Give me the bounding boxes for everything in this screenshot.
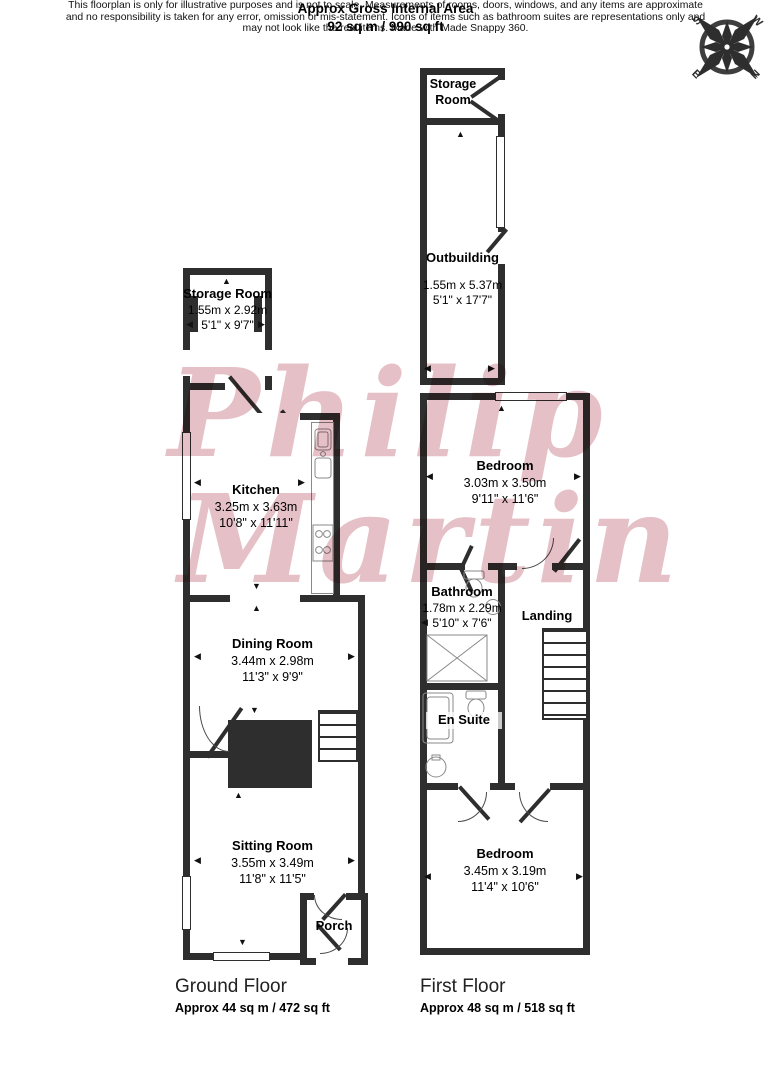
room-name: Dining Room bbox=[190, 636, 355, 653]
first-floor-caption: First Floor Approx 48 sq m / 518 sq ft bbox=[420, 976, 575, 1015]
room-dim-metric: 3.45m x 3.19m bbox=[432, 863, 578, 879]
room-name: Bedroom bbox=[432, 846, 578, 863]
door-opening bbox=[190, 413, 300, 420]
room-dim-metric: 1.55m x 2.92m bbox=[181, 303, 274, 318]
room-dim-imperial: 11'4" x 10'6" bbox=[432, 879, 578, 895]
shower-icon bbox=[426, 634, 488, 682]
room-label-kitchen: Kitchen 3.25m x 3.63m 10'8" x 11'11" bbox=[196, 482, 316, 531]
measure-arrow-icon: ▲ bbox=[456, 130, 465, 139]
measure-arrow-icon: ▶ bbox=[488, 364, 495, 373]
disclaimer-line3: may not look like the real items. Made w… bbox=[0, 23, 771, 35]
room-dim-metric: 1.55m x 5.37m bbox=[422, 278, 503, 293]
room-label-bathroom: Bathroom 1.78m x 2.29m 5'10" x 7'6" bbox=[418, 584, 506, 631]
window bbox=[182, 432, 191, 520]
room-dim-metric: 3.25m x 3.63m bbox=[196, 499, 316, 515]
wall-segment bbox=[550, 783, 590, 790]
basin-icon bbox=[423, 754, 449, 780]
room-name: Landing bbox=[508, 608, 586, 625]
room-dim-imperial: 10'8" x 11'11" bbox=[196, 515, 316, 531]
window bbox=[213, 952, 270, 961]
room-dim-metric: 3.03m x 3.50m bbox=[432, 475, 578, 491]
measure-arrow-icon: ▼ bbox=[252, 582, 261, 591]
ground-floor-caption: Ground Floor Approx 44 sq m / 472 sq ft bbox=[175, 976, 330, 1015]
room-label-outbuilding: Outbuilding 1.55m x 5.37m 5'1" x 17'7" bbox=[422, 250, 503, 308]
measure-arrow-icon: ▶ bbox=[298, 478, 305, 487]
room-dim-imperial: 11'8" x 11'5" bbox=[190, 871, 355, 887]
measure-arrow-icon: ▶ bbox=[576, 872, 583, 881]
room-dim-metric: 3.44m x 2.98m bbox=[190, 653, 355, 669]
room-dim-metric: 1.78m x 2.29m bbox=[418, 601, 506, 616]
measure-arrow-icon: ◀ bbox=[194, 856, 201, 865]
measure-arrow-icon: ◀ bbox=[426, 472, 433, 481]
measure-arrow-icon: ▲ bbox=[497, 404, 506, 413]
room-name: Outbuilding bbox=[422, 250, 503, 267]
door-opening bbox=[225, 383, 265, 390]
room-label-sitting: Sitting Room 3.55m x 3.49m 11'8" x 11'5" bbox=[190, 838, 355, 887]
door-opening bbox=[316, 958, 348, 965]
wall-segment bbox=[490, 783, 505, 790]
room-dim-metric: 3.55m x 3.49m bbox=[190, 855, 355, 871]
floor-name: Ground Floor bbox=[175, 976, 330, 998]
measure-arrow-icon: ▼ bbox=[238, 938, 247, 947]
room-name: Storage Room bbox=[181, 286, 274, 303]
room-label-dining: Dining Room 3.44m x 2.98m 11'3" x 9'9" bbox=[190, 636, 355, 685]
staircase-first bbox=[542, 628, 588, 720]
room-label-bedroom2: Bedroom 3.45m x 3.19m 11'4" x 10'6" bbox=[432, 846, 578, 895]
room-label-ensuite: En Suite bbox=[426, 712, 502, 729]
room-label-landing: Landing bbox=[508, 608, 586, 625]
measure-arrow-icon: ▼ bbox=[250, 706, 259, 715]
disclaimer-line2: and no responsibility is taken for any e… bbox=[0, 12, 771, 24]
room-dim-imperial: 9'11" x 11'6" bbox=[432, 491, 578, 507]
measure-arrow-icon: ▲ bbox=[252, 604, 261, 613]
room-name: Bedroom bbox=[432, 458, 578, 475]
sink-icon bbox=[313, 428, 333, 480]
room-name: Porch bbox=[302, 918, 366, 935]
floor-area: Approx 48 sq m / 518 sq ft bbox=[420, 1001, 575, 1015]
spacer bbox=[422, 267, 503, 278]
wall-segment bbox=[505, 783, 515, 790]
measure-arrow-icon: ▶ bbox=[348, 652, 355, 661]
door-opening bbox=[230, 595, 300, 602]
door-opening bbox=[183, 350, 190, 376]
measure-arrow-icon: ◀ bbox=[194, 652, 201, 661]
floor-name: First Floor bbox=[420, 976, 575, 998]
measure-arrow-icon: ▶ bbox=[574, 472, 581, 481]
floorplan-page: Approx Gross Internal Area 92 sq m / 990… bbox=[0, 0, 771, 1080]
door-opening bbox=[498, 80, 505, 114]
room-name: Storage Room bbox=[422, 76, 484, 108]
measure-arrow-icon: ▶ bbox=[348, 856, 355, 865]
floor-area: Approx 44 sq m / 472 sq ft bbox=[175, 1001, 330, 1015]
room-name: En Suite bbox=[426, 712, 502, 729]
staircase-ground bbox=[318, 710, 358, 762]
disclaimer-line1: This floorplan is only for illustrative … bbox=[0, 0, 771, 12]
wall-segment bbox=[505, 563, 517, 570]
measure-arrow-icon: ◀ bbox=[194, 478, 201, 487]
wall-segment bbox=[420, 683, 505, 690]
measure-arrow-icon: ◀ bbox=[424, 872, 431, 881]
window bbox=[496, 136, 505, 228]
wall-segment bbox=[420, 783, 458, 790]
measure-arrow-icon: ▲ bbox=[234, 791, 243, 800]
measure-arrow-icon: ◀ bbox=[421, 618, 428, 627]
room-dim-imperial: 5'10" x 7'6" bbox=[418, 616, 506, 631]
room-name: Sitting Room bbox=[190, 838, 355, 855]
room-name: Bathroom bbox=[418, 584, 506, 601]
room-label-bedroom1: Bedroom 3.03m x 3.50m 9'11" x 11'6" bbox=[432, 458, 578, 507]
room-dim-imperial: 11'3" x 9'9" bbox=[190, 669, 355, 685]
compass-east-label: E bbox=[690, 68, 703, 82]
room-label-porch: Porch bbox=[302, 918, 366, 935]
disclaimer: This floorplan is only for illustrative … bbox=[0, 0, 771, 35]
door-opening bbox=[265, 350, 272, 376]
measure-arrow-icon: ▲ bbox=[222, 277, 231, 286]
measure-arrow-icon: ◀ bbox=[186, 320, 193, 329]
measure-arrow-icon: ▶ bbox=[258, 320, 265, 329]
room-dim-imperial: 5'1" x 17'7" bbox=[422, 293, 503, 308]
chimney-breast bbox=[228, 720, 312, 788]
measure-arrow-icon: ◀ bbox=[424, 364, 431, 373]
window bbox=[495, 392, 567, 401]
room-label-storage-first: Storage Room bbox=[422, 76, 484, 108]
